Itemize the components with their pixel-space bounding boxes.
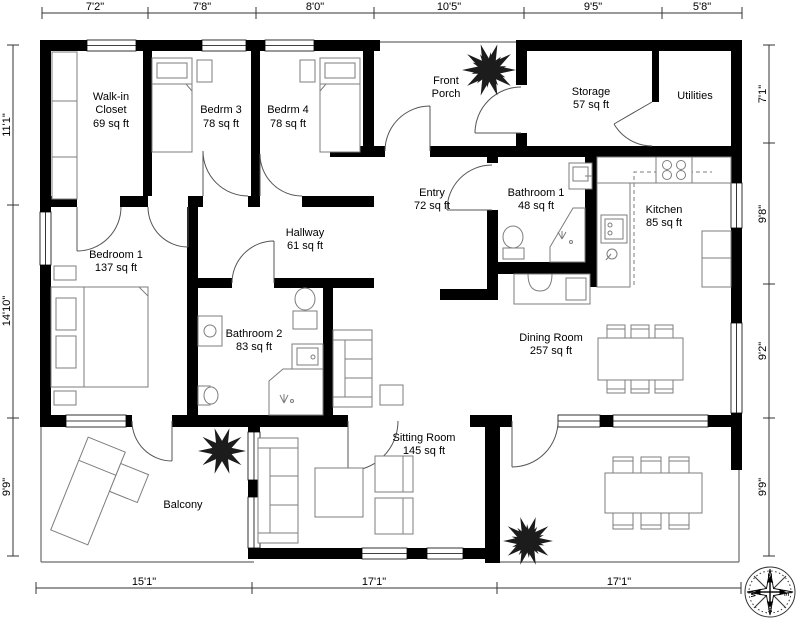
toilet-icon xyxy=(503,226,524,259)
dim-top-2: 7'8" xyxy=(193,1,211,13)
closet-shelves-icon xyxy=(52,52,77,199)
bed-double-icon xyxy=(51,266,148,405)
washbasin-icon xyxy=(292,344,323,369)
armchair-icon xyxy=(375,456,413,492)
room-label-storage-area: 57 sq ft xyxy=(573,99,609,111)
compass-s-label: S xyxy=(768,608,773,615)
plant-icon xyxy=(198,428,246,474)
room-label-walkin-1: Walk-in xyxy=(93,91,129,103)
armchair-icon xyxy=(375,498,413,534)
room-label-walkin-2: Closet xyxy=(95,104,126,116)
room-label-bedrm4-area: 78 sq ft xyxy=(270,118,306,130)
furniture xyxy=(51,52,731,545)
dim-bottom-3: 17'1" xyxy=(607,576,631,588)
compass-n-label: N xyxy=(768,573,773,580)
dim-right-1: 7'1" xyxy=(757,85,769,103)
room-label-hallway-area: 61 sq ft xyxy=(287,240,323,252)
dimension-top: 7'2" 7'8" 8'0" 10'5" 9'5" 5'8" xyxy=(42,1,742,19)
dim-left-2: 14'10" xyxy=(1,296,13,327)
room-label-sitting-area: 145 sq ft xyxy=(403,445,445,457)
desk-icon xyxy=(514,274,590,304)
dim-top-6: 5'8" xyxy=(693,1,711,13)
corner-shower-icon xyxy=(269,369,323,415)
room-label-dining: Dining Room xyxy=(519,332,583,344)
room-label-bedrm3-area: 78 sq ft xyxy=(203,118,239,130)
coffee-table-icon xyxy=(315,468,363,517)
room-label-bath2: Bathroom 2 xyxy=(226,328,283,340)
dim-bottom-1: 15'1" xyxy=(132,576,156,588)
room-label-bedrm3: Bedrm 3 xyxy=(200,104,242,116)
dim-top-1: 7'2" xyxy=(86,1,104,13)
fridge-icon xyxy=(702,231,731,287)
sofa-icon xyxy=(258,438,298,543)
dim-right-2: 9'8" xyxy=(757,205,769,223)
room-label-dining-area: 257 sq ft xyxy=(530,345,572,357)
dimension-right: 7'1" 9'8" 9'2" 9'9" xyxy=(757,45,775,556)
room-label-storage: Storage xyxy=(572,86,611,98)
room-label-bedroom1: Bedroom 1 xyxy=(89,249,143,261)
dimension-left: 11'1" 14'10" 9'9" xyxy=(1,45,19,556)
compass-w-label: W xyxy=(751,590,758,597)
sofa-icon xyxy=(333,330,403,407)
dim-right-4: 9'9" xyxy=(757,478,769,496)
dim-top-5: 9'5" xyxy=(584,1,602,13)
patio-table-icon xyxy=(605,457,702,529)
plant-icon xyxy=(462,44,516,95)
room-label-sitting: Sitting Room xyxy=(393,432,456,444)
floor-plan-page: 7'2" 7'8" 8'0" 10'5" 9'5" 5'8" 11'1" 14'… xyxy=(0,0,800,619)
bidet-icon xyxy=(198,386,218,405)
dimension-bottom: 15'1" 17'1" 17'1" xyxy=(36,576,741,594)
room-label-porch-2: Porch xyxy=(432,88,461,100)
dining-table-icon xyxy=(598,325,683,393)
room-label-utilities: Utilities xyxy=(677,90,713,102)
dim-bottom-2: 17'1" xyxy=(362,576,386,588)
room-label-entry: Entry xyxy=(419,187,445,199)
room-label-bedrm4: Bedrm 4 xyxy=(267,104,309,116)
dim-left-3: 9'9" xyxy=(1,478,13,496)
room-label-kitchen-area: 85 sq ft xyxy=(646,217,682,229)
toilet-icon xyxy=(293,288,317,329)
sink-vanity-icon xyxy=(198,316,222,346)
plant-icon xyxy=(503,517,553,565)
sink-vanity-icon xyxy=(569,163,592,189)
room-label-bath1-area: 48 sq ft xyxy=(518,200,554,212)
compass-e-label: E xyxy=(783,592,790,597)
room-label-kitchen: Kitchen xyxy=(646,204,683,216)
dim-right-3: 9'2" xyxy=(757,342,769,360)
room-label-bath2-area: 83 sq ft xyxy=(236,341,272,353)
corner-shower-icon xyxy=(550,208,585,262)
bed-single-icon xyxy=(300,58,360,152)
room-label-balcony: Balcony xyxy=(163,499,203,511)
room-label-hallway: Hallway xyxy=(286,227,325,239)
dim-top-3: 8'0" xyxy=(306,1,324,13)
room-label-bedroom1-area: 137 sq ft xyxy=(95,262,137,274)
room-label-bath1: Bathroom 1 xyxy=(508,187,565,199)
floor-plan-drawing: 7'2" 7'8" 8'0" 10'5" 9'5" 5'8" 11'1" 14'… xyxy=(0,0,800,619)
room-label-entry-area: 72 sq ft xyxy=(414,200,450,212)
room-label-walkin-area: 69 sq ft xyxy=(93,118,129,130)
compass-rose: N E S W xyxy=(745,567,795,617)
dim-left-1: 11'1" xyxy=(1,113,13,137)
dim-top-4: 10'5" xyxy=(437,1,461,13)
stove-icon xyxy=(656,157,692,183)
room-label-porch-1: Front xyxy=(433,75,459,87)
